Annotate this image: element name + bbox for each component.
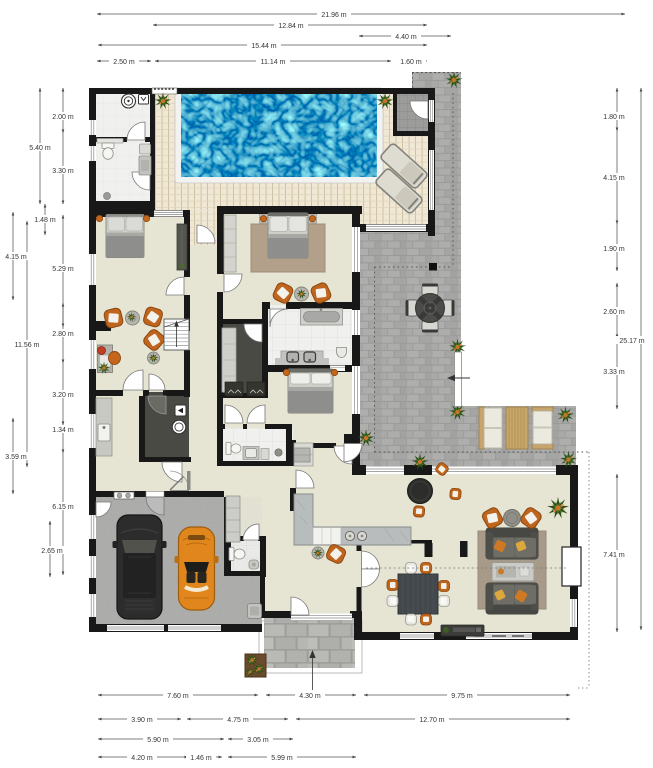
svg-text:1.48 m: 1.48 m <box>34 217 56 224</box>
svg-text:5.29 m: 5.29 m <box>52 266 74 273</box>
svg-text:7.41 m: 7.41 m <box>603 552 625 559</box>
svg-text:1.46 m: 1.46 m <box>190 755 212 762</box>
svg-text:4.15 m: 4.15 m <box>5 254 27 261</box>
svg-text:3.33 m: 3.33 m <box>603 369 625 376</box>
svg-text:11.14 m: 11.14 m <box>261 59 286 66</box>
svg-text:3.90 m: 3.90 m <box>131 717 153 724</box>
svg-text:2.80 m: 2.80 m <box>52 331 74 338</box>
svg-text:1.80 m: 1.80 m <box>603 114 625 121</box>
svg-text:25.17 m: 25.17 m <box>619 338 644 345</box>
svg-text:4.40 m: 4.40 m <box>395 34 417 41</box>
svg-text:12.84 m: 12.84 m <box>278 23 303 30</box>
svg-text:15.44 m: 15.44 m <box>251 43 276 50</box>
svg-text:2.50 m: 2.50 m <box>113 59 135 66</box>
svg-text:4.75 m: 4.75 m <box>227 717 249 724</box>
svg-text:1.90 m: 1.90 m <box>603 246 625 253</box>
svg-text:7.60 m: 7.60 m <box>167 693 189 700</box>
svg-text:5.99 m: 5.99 m <box>271 755 293 762</box>
svg-text:4.30 m: 4.30 m <box>299 693 321 700</box>
svg-text:11.56 m: 11.56 m <box>15 342 40 349</box>
svg-text:3.30 m: 3.30 m <box>52 168 74 175</box>
svg-text:4.20 m: 4.20 m <box>131 755 153 762</box>
svg-text:6.15 m: 6.15 m <box>52 504 74 511</box>
svg-text:2.00 m: 2.00 m <box>52 114 74 121</box>
svg-text:1.60 m: 1.60 m <box>400 59 422 66</box>
svg-text:2.65 m: 2.65 m <box>41 548 63 555</box>
svg-text:9.75 m: 9.75 m <box>451 693 473 700</box>
svg-text:2.60 m: 2.60 m <box>603 309 625 316</box>
svg-text:12.70 m: 12.70 m <box>419 717 444 724</box>
svg-text:3.20 m: 3.20 m <box>52 392 74 399</box>
svg-text:21.96 m: 21.96 m <box>321 12 346 19</box>
svg-text:3.05 m: 3.05 m <box>247 737 269 744</box>
svg-text:5.90 m: 5.90 m <box>147 737 169 744</box>
svg-text:5.40 m: 5.40 m <box>29 145 51 152</box>
svg-text:3.59 m: 3.59 m <box>5 454 27 461</box>
svg-text:1.34 m: 1.34 m <box>52 427 74 434</box>
svg-text:4.15 m: 4.15 m <box>603 175 625 182</box>
